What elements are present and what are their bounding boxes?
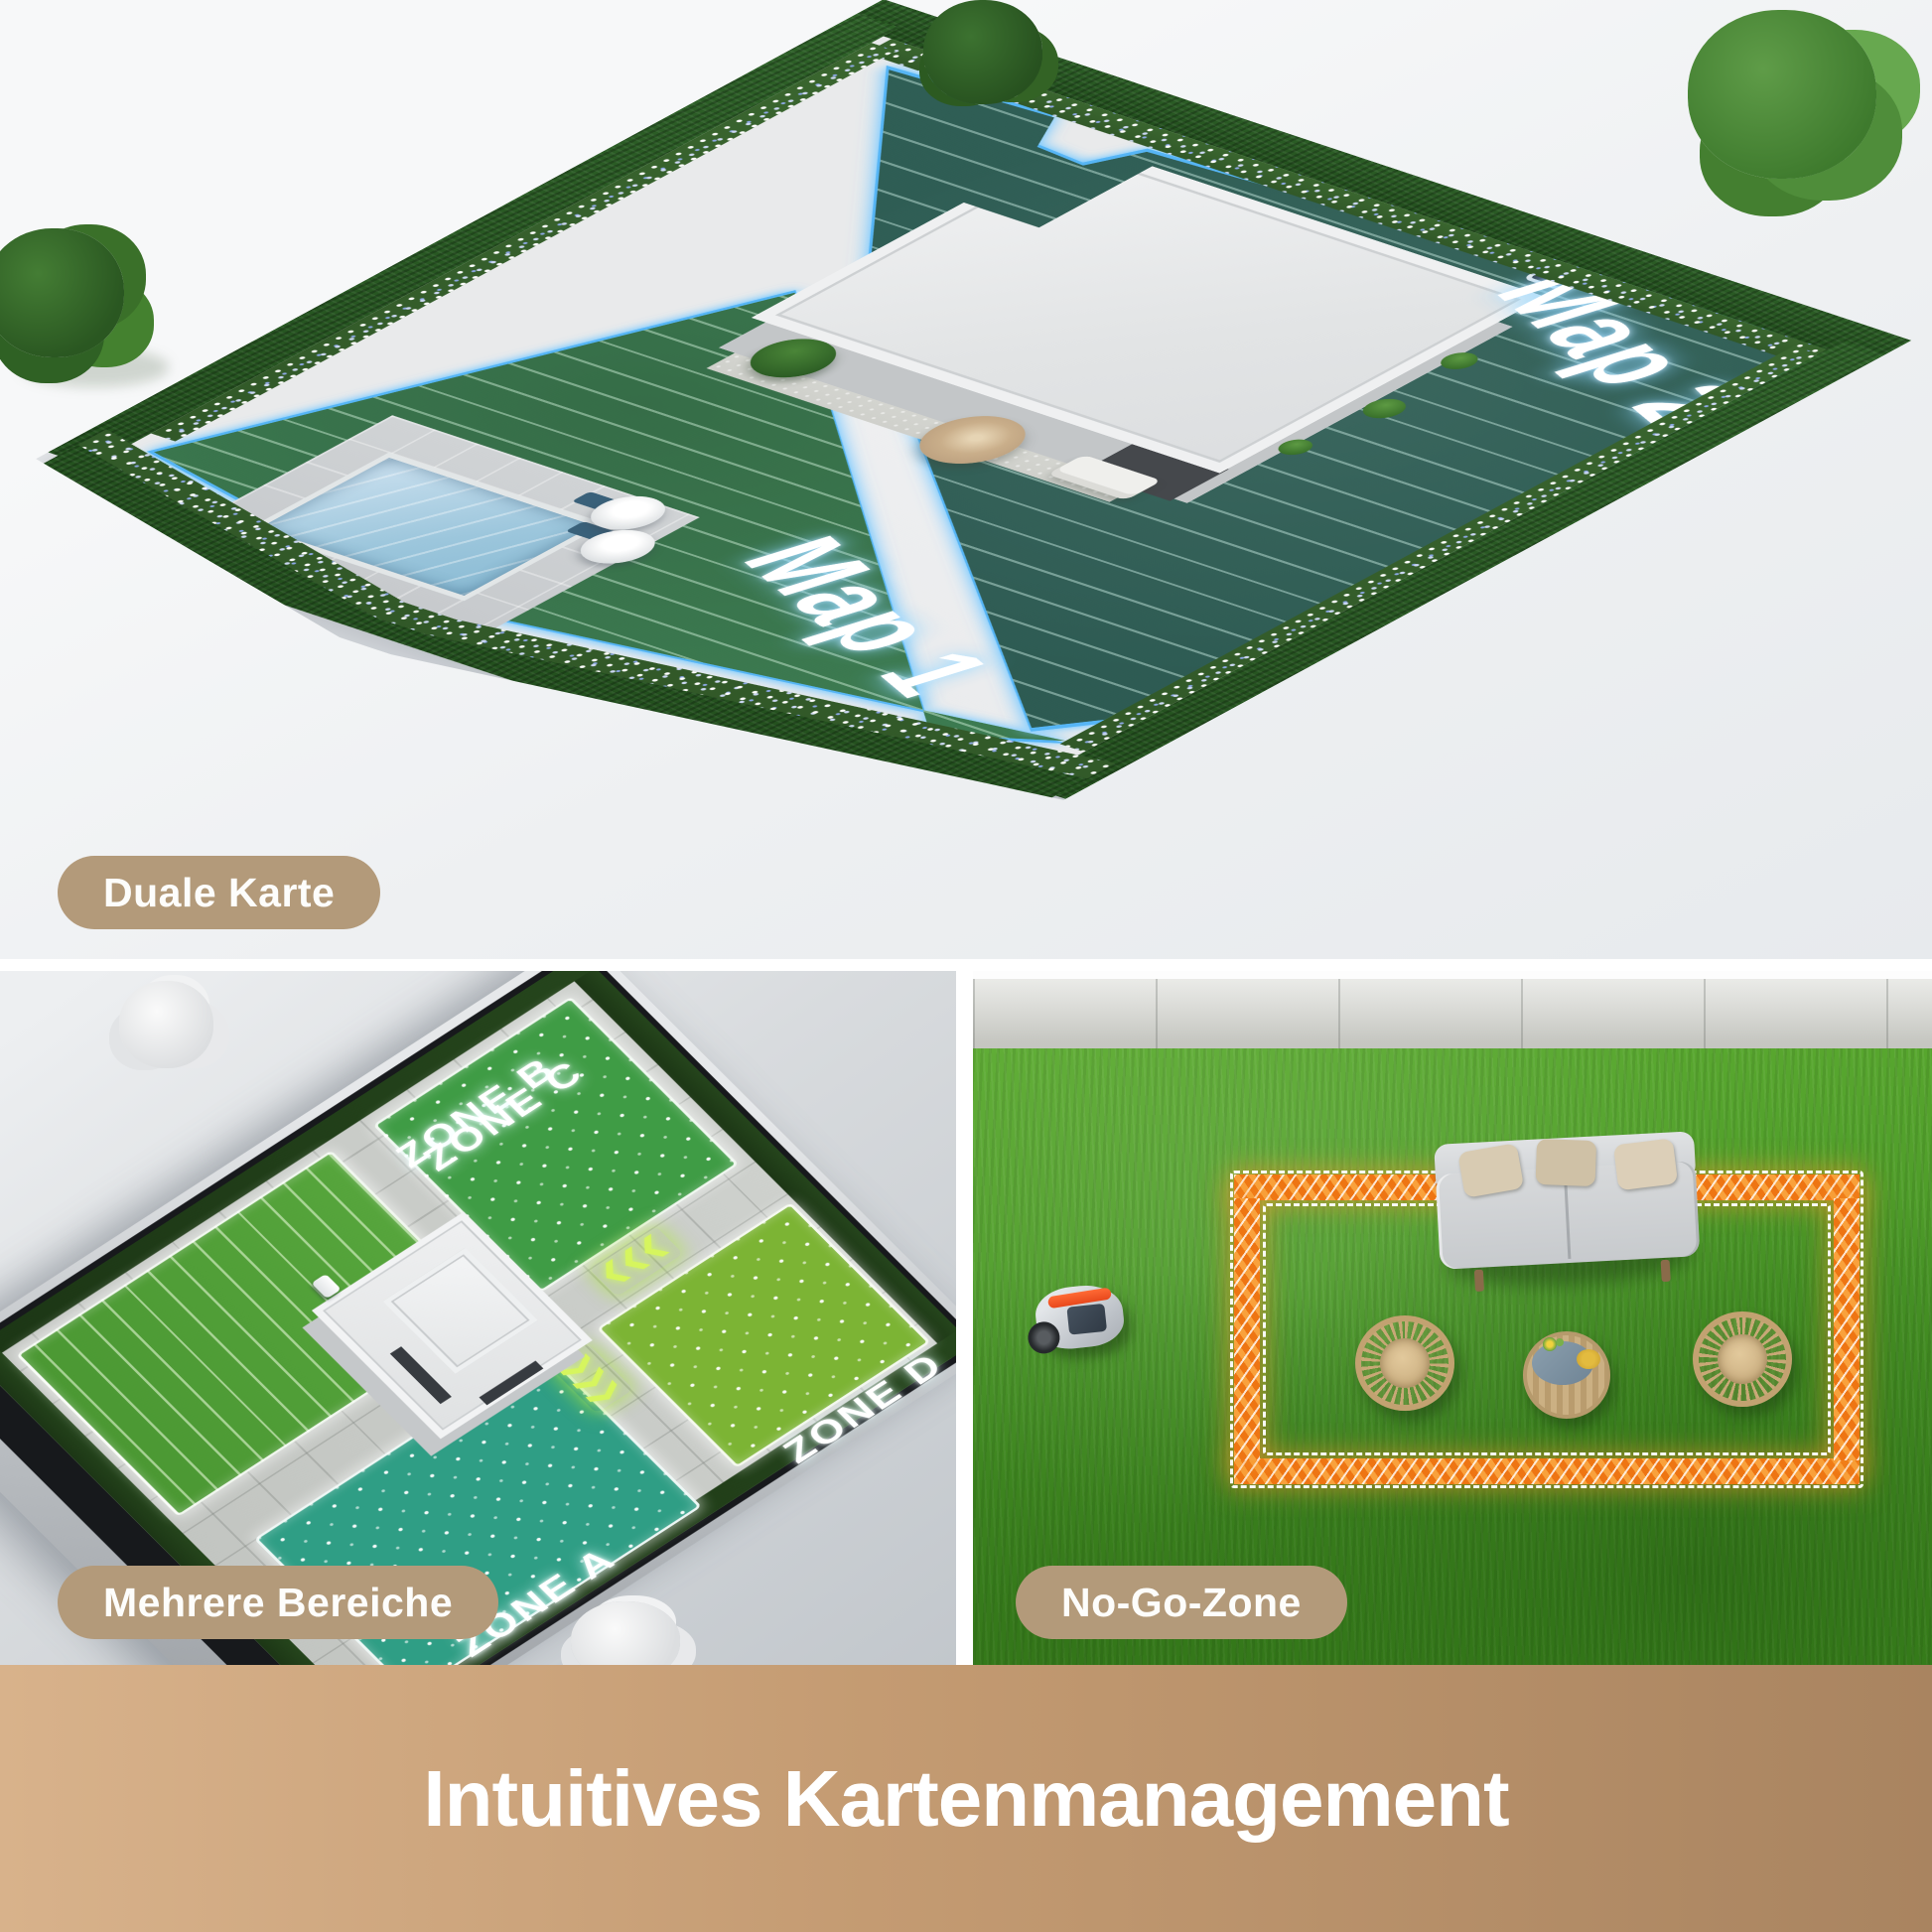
white-tree-icon	[119, 981, 213, 1068]
garden-plot-isometric: Map 2 Map 1	[0, 8, 1891, 836]
wicker-chair-icon	[1355, 1315, 1454, 1411]
multi-zone-badge: Mehrere Bereiche	[58, 1566, 498, 1639]
no-go-zone-badge: No-Go-Zone	[1016, 1566, 1347, 1639]
wicker-chair-icon	[1693, 1311, 1792, 1407]
tree-icon	[1688, 10, 1876, 179]
dual-map-panel: Map 2 Map 1 Duale Karte	[0, 0, 1932, 959]
footer-bar: Intuitives Kartenmanagement	[0, 1665, 1932, 1932]
robot-mower-icon	[1024, 1282, 1128, 1363]
white-tree-icon	[571, 1601, 680, 1665]
no-go-zone-panel: No-Go-Zone	[973, 971, 1932, 1665]
paver-terrace-strip	[973, 979, 1932, 1048]
tree-icon	[923, 0, 1042, 104]
garden-sofa	[1434, 1131, 1702, 1296]
side-table	[1523, 1331, 1610, 1419]
tree-icon	[0, 228, 124, 357]
dual-map-badge: Duale Karte	[58, 856, 380, 929]
phone-garden-map: ❯❯❯ ❯❯❯ ZONE B . ZONE C ZONE A ZONE D	[0, 971, 956, 1665]
mower-map-infographic: Map 2 Map 1 Duale Karte ❯❯❯ ❯❯❯	[0, 0, 1932, 1932]
multi-zone-panel: ❯❯❯ ❯❯❯ ZONE B . ZONE C ZONE A ZONE D Me…	[0, 971, 956, 1665]
page-title: Intuitives Kartenmanagement	[423, 1753, 1508, 1845]
